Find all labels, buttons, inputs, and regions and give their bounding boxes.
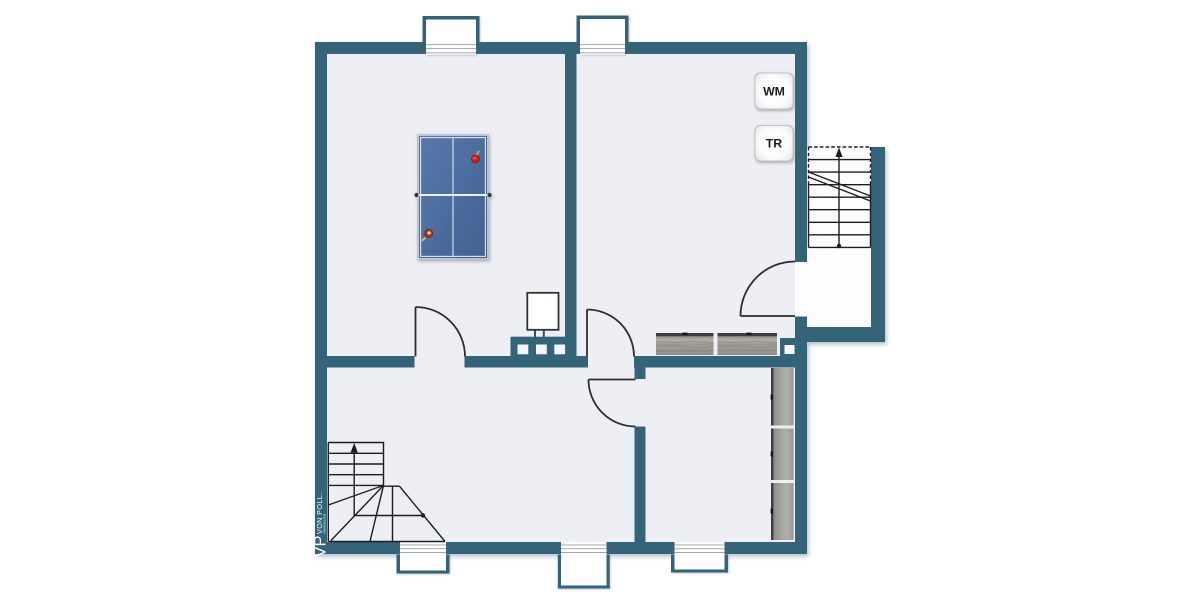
svg-text:TR: TR [766,137,783,151]
svg-text:VP: VP [312,535,330,557]
svg-text:IMMOBILIEN: IMMOBILIEN [322,514,326,534]
svg-text:WM: WM [763,85,785,99]
